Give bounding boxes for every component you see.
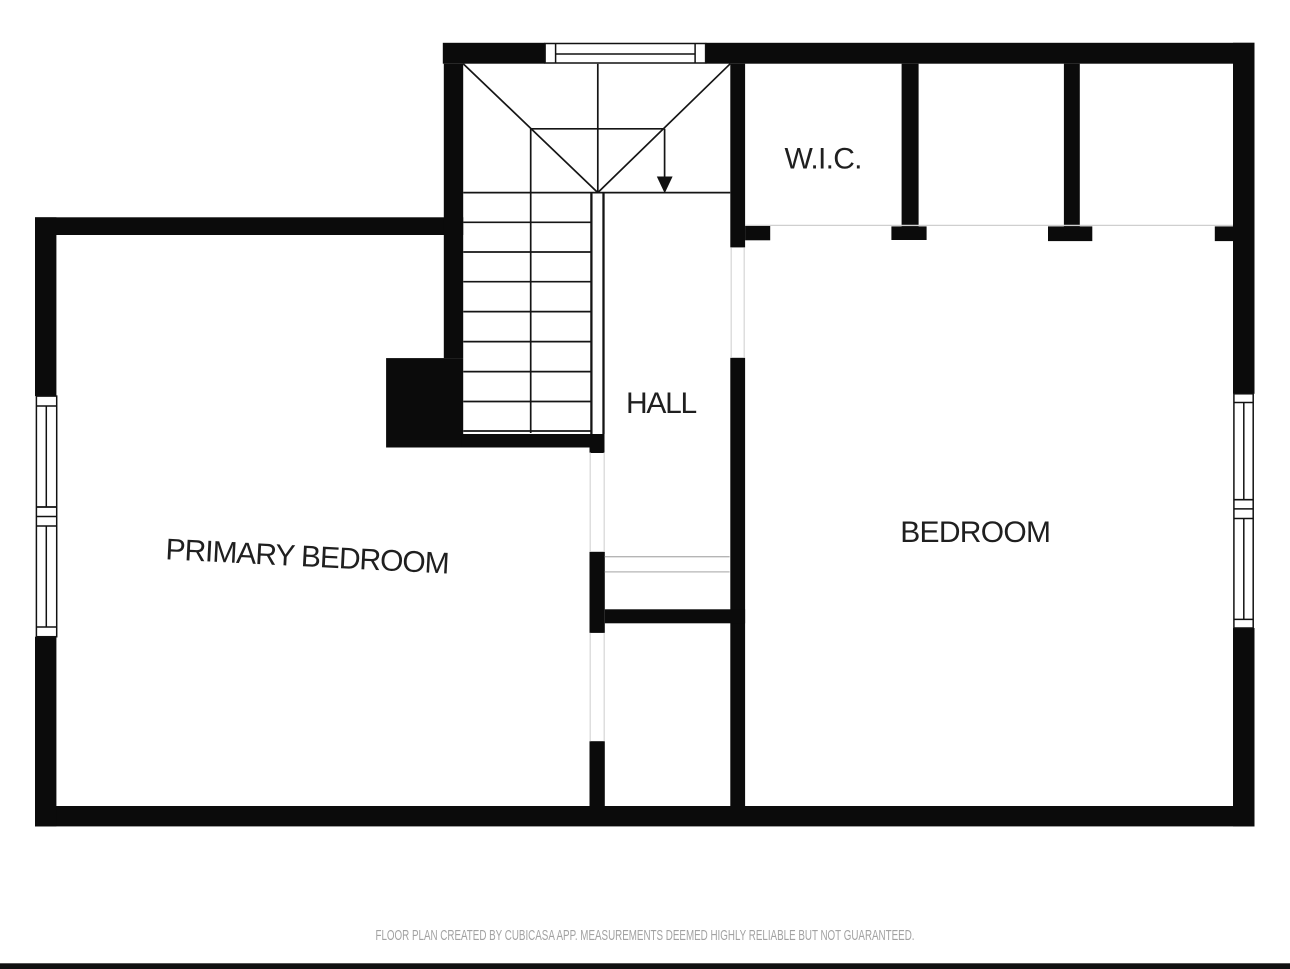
svg-text:FLOOR PLAN CREATED BY CUBICASA: FLOOR PLAN CREATED BY CUBICASA APP. MEAS…: [376, 928, 915, 944]
svg-text:BEDROOM: BEDROOM: [900, 516, 1051, 549]
svg-text:W.I.C.: W.I.C.: [785, 143, 863, 176]
svg-text:HALL: HALL: [626, 387, 697, 420]
